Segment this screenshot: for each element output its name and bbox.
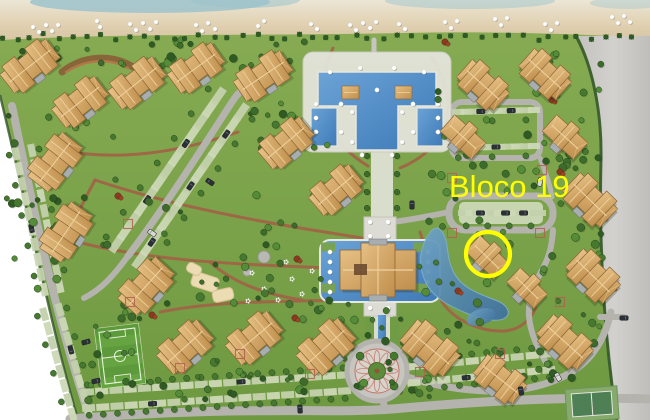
tree [6, 152, 13, 159]
palm-tree [269, 36, 274, 41]
palm-tree [563, 34, 568, 39]
car [519, 211, 527, 216]
parking-stall [510, 353, 524, 361]
palm-tree [546, 34, 551, 39]
car [501, 211, 509, 216]
palm-tree [182, 36, 187, 41]
tree [34, 313, 41, 320]
parking-stall [530, 210, 546, 216]
palm-tree [71, 34, 76, 39]
car [297, 405, 302, 414]
car [476, 211, 484, 216]
parking-stall [96, 403, 109, 411]
palm-tree [196, 32, 201, 37]
palm-tree [364, 36, 369, 41]
car [462, 375, 471, 380]
lap-pool [311, 108, 337, 146]
tree [50, 370, 57, 377]
palm-tree [241, 33, 246, 38]
parking-stall [167, 398, 180, 406]
parking-stall [210, 396, 223, 404]
parking-stall [39, 307, 49, 321]
tree [12, 182, 19, 189]
palm-tree [127, 34, 132, 39]
lap-pool [417, 108, 443, 146]
palm-tree [224, 35, 229, 40]
tree [19, 213, 26, 220]
parking-stall [166, 382, 179, 390]
parking-stall [110, 402, 123, 410]
parking-stall [223, 379, 236, 387]
tree [12, 256, 18, 262]
palm-tree [603, 35, 608, 40]
parking-stall [324, 388, 337, 396]
palm-tree [589, 37, 594, 42]
palm-tree [213, 35, 218, 40]
palm-tree [297, 32, 302, 37]
tree [42, 342, 49, 349]
car [237, 379, 246, 384]
palm-tree [172, 37, 177, 42]
palm-tree [155, 35, 160, 40]
palm-tree [437, 34, 442, 39]
parking-stall [309, 389, 322, 397]
palm-tree [537, 38, 542, 43]
car [410, 201, 415, 209]
palm-tree [617, 33, 622, 38]
palm-tree [98, 32, 103, 37]
car [507, 108, 516, 113]
tree [31, 273, 38, 280]
palm-tree [629, 34, 634, 39]
palm-tree [573, 34, 578, 39]
parking-stall [238, 394, 251, 402]
palm-tree [310, 35, 315, 40]
paved-pad [258, 251, 270, 263]
palm-tree [381, 36, 386, 41]
parking-stall [124, 401, 137, 409]
soccer-field [95, 324, 146, 389]
parking-stall [281, 391, 294, 399]
planter [390, 317, 399, 343]
bloco-19-label: Bloco 19 [449, 169, 570, 204]
parking-stall [138, 384, 151, 392]
parking-stall [81, 388, 94, 396]
tennis-court [565, 386, 619, 420]
parking-stall [407, 378, 421, 386]
main-pool-complex [303, 52, 451, 158]
parking-stall [338, 387, 351, 395]
palm-tree [142, 34, 147, 39]
palm-tree [282, 36, 287, 41]
car [492, 145, 501, 150]
palm-tree [27, 35, 32, 40]
palm-tree [335, 35, 340, 40]
car [620, 316, 628, 321]
parking-stall [267, 392, 280, 400]
palm-tree [85, 34, 90, 39]
palm-tree [354, 33, 359, 38]
palm-tree [506, 33, 511, 38]
palm-tree [395, 33, 400, 38]
resort-site-plan[interactable]: Bloco 19 [0, 0, 650, 420]
parking-stall [180, 381, 193, 389]
parking-stall [82, 404, 95, 412]
palm-tree [521, 33, 526, 38]
palm-tree [113, 37, 118, 42]
parking-stall [266, 376, 279, 384]
parking-stall [465, 357, 479, 365]
site-plan-image: Bloco 19 [0, 0, 650, 420]
entrance-roundabout [347, 341, 407, 401]
palm-tree [256, 32, 261, 37]
parking-stall [528, 107, 540, 113]
palm-tree [480, 35, 485, 40]
palm-tree [323, 35, 328, 40]
palm-tree [423, 34, 428, 39]
tree [4, 196, 10, 202]
parking-stall [252, 393, 265, 401]
car [148, 401, 157, 406]
palm-tree [57, 36, 62, 41]
palm-tree [409, 33, 414, 38]
palm-tree [493, 33, 498, 38]
parking-stall [209, 380, 222, 388]
palm-tree [16, 37, 21, 42]
palm-tree [448, 33, 453, 38]
parking-stall [528, 143, 540, 149]
tree [58, 399, 65, 406]
palm-tree [0, 36, 5, 41]
palm-tree [463, 33, 468, 38]
tree [25, 243, 32, 250]
